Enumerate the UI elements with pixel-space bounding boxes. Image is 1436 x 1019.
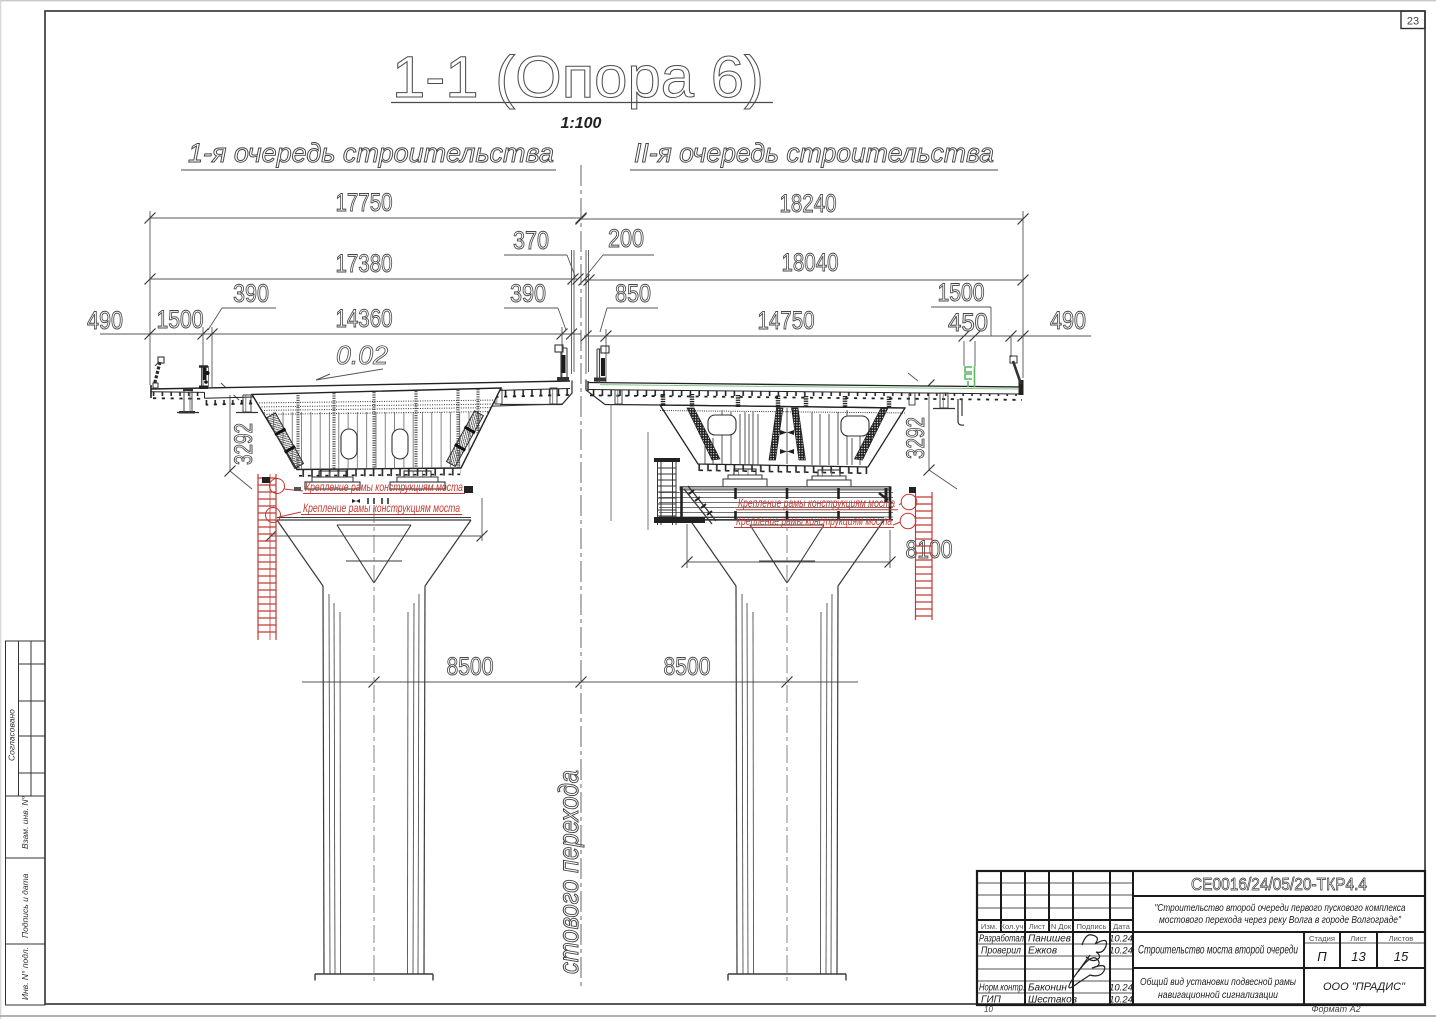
svg-text:8500: 8500 [664, 653, 711, 681]
svg-text:10.24: 10.24 [1109, 934, 1133, 945]
svg-text:Инв. N° подл.: Инв. N° подл. [20, 947, 30, 1000]
svg-text:ГИП: ГИП [981, 995, 1002, 1006]
svg-text:Шестаков: Шестаков [1028, 995, 1077, 1006]
svg-text:Лист: Лист [1029, 922, 1046, 931]
svg-text:17750: 17750 [336, 189, 393, 217]
svg-text:навигационной сигнализации: навигационной сигнализации [1158, 990, 1278, 1001]
svg-text:450: 450 [948, 309, 988, 337]
svg-text:18240: 18240 [780, 190, 837, 218]
svg-text:стового перехода: стового перехода [553, 770, 584, 974]
svg-text:1:100: 1:100 [561, 115, 602, 132]
svg-text:П: П [1317, 949, 1327, 964]
svg-text:18040: 18040 [782, 249, 839, 277]
svg-text:10.24: 10.24 [1109, 983, 1133, 994]
svg-text:Лист: Лист [1350, 934, 1367, 943]
svg-text:490: 490 [87, 307, 123, 335]
svg-text:Крепление рамы конструкциям мо: Крепление рамы конструкциям моста [738, 498, 895, 510]
svg-text:14360: 14360 [336, 305, 393, 333]
svg-text:15: 15 [1394, 949, 1409, 964]
svg-text:Взам. инв. N°: Взам. инв. N° [20, 795, 30, 849]
svg-text:17380: 17380 [336, 250, 393, 278]
svg-text:Стадия: Стадия [1309, 934, 1335, 943]
svg-text:Крепление рамы конструкциям мо: Крепление рамы конструкциям моста [303, 503, 460, 515]
svg-text:Панишев: Панишев [1028, 934, 1071, 945]
svg-text:Крепление рамы конструкциям мо: Крепление рамы конструкциям моста [736, 516, 892, 528]
svg-text:0.02: 0.02 [336, 340, 389, 370]
svg-text:СЕ0016/24/05/20-ТКР4.4: СЕ0016/24/05/20-ТКР4.4 [1191, 874, 1367, 894]
svg-text:Проверил: Проверил [981, 946, 1021, 957]
svg-text:1500: 1500 [938, 279, 985, 307]
svg-text:Формат А2: Формат А2 [1311, 1004, 1360, 1014]
svg-text:Изм.: Изм. [981, 922, 997, 931]
svg-text:Подпись: Подпись [1076, 922, 1106, 931]
svg-text:Разработал: Разработал [979, 933, 1024, 945]
svg-text:3292: 3292 [230, 423, 258, 465]
svg-text:390: 390 [233, 280, 269, 308]
svg-text:Подпись и дата: Подпись и дата [20, 873, 30, 938]
svg-text:200: 200 [608, 225, 644, 253]
svg-text:Баконин: Баконин [1028, 983, 1067, 994]
svg-text:N Док: N Док [1051, 922, 1072, 931]
svg-text:мостового перехода через реку: мостового перехода через реку Волга в го… [1159, 915, 1402, 926]
svg-text:Общий вид установки подвесной: Общий вид установки подвесной рамы [1140, 976, 1296, 988]
svg-text:3292: 3292 [902, 417, 930, 459]
svg-text:13: 13 [1351, 949, 1366, 964]
svg-text:1-1 (Опора 6): 1-1 (Опора 6) [392, 45, 764, 110]
svg-text:370: 370 [513, 227, 549, 255]
svg-text:1-я очередь строительства: 1-я очередь строительства [188, 138, 554, 168]
svg-text:1500: 1500 [157, 306, 204, 334]
svg-text:"Строительство второй очереди: "Строительство второй очереди первого пу… [1155, 903, 1406, 914]
svg-text:Ежков: Ежков [1028, 946, 1057, 957]
svg-text:Дата: Дата [1113, 922, 1131, 931]
svg-text:490: 490 [1050, 307, 1086, 335]
svg-text:14750: 14750 [758, 307, 815, 335]
svg-text:8500: 8500 [447, 653, 494, 681]
svg-text:Кол.уч.: Кол.уч. [1001, 922, 1026, 931]
svg-text:ООО "ПРАДИС": ООО "ПРАДИС" [1323, 981, 1406, 993]
svg-text:Крепление рамы конструкциям мо: Крепление рамы конструкциям моста [305, 482, 463, 494]
svg-text:10.24: 10.24 [1109, 946, 1133, 957]
svg-text:Норм.контр.: Норм.контр. [979, 983, 1025, 994]
svg-text:II-я очередь строительства: II-я очередь строительства [634, 138, 994, 168]
svg-text:Строительство моста второй оче: Строительство моста второй очереди [1138, 945, 1298, 957]
svg-text:23: 23 [1407, 16, 1419, 28]
svg-text:850: 850 [615, 280, 651, 308]
svg-text:Согласовано: Согласовано [7, 709, 17, 761]
svg-text:Листов: Листов [1389, 934, 1414, 943]
svg-text:390: 390 [510, 280, 546, 308]
svg-text:10.24: 10.24 [1109, 995, 1133, 1006]
svg-text:10: 10 [984, 1005, 993, 1014]
